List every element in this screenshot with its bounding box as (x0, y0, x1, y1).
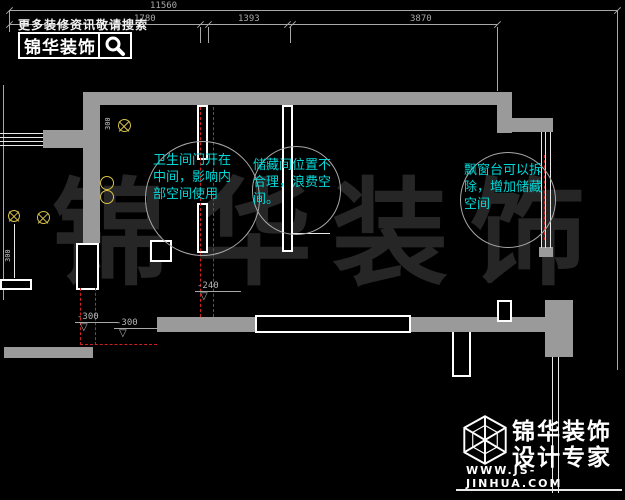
wall-stub-right (497, 300, 512, 322)
footer-cube-logo-icon (462, 414, 508, 470)
level-label: -240 (197, 281, 219, 291)
watermark-char: 装 (332, 176, 448, 292)
drain-symbol-icon (8, 210, 20, 222)
dim-extension-left (3, 85, 4, 300)
drain-symbol-icon (37, 211, 50, 224)
level-triangle-icon: ▽ (200, 292, 208, 302)
header-slogan: 更多装修资讯敬请搜索 (18, 16, 148, 33)
riser-label: 300 (4, 249, 12, 262)
wall-bay-bottom-cap (539, 247, 553, 257)
header-logo-text: 锦华装饰 (20, 33, 98, 58)
dim-extension (9, 10, 10, 32)
level-triangle-icon: ▽ (80, 323, 88, 333)
annotation-text-bathroom: 卫生间门开在 中间，影响内 部空间使用 (153, 152, 253, 203)
level-triangle-icon: ▽ (119, 329, 127, 339)
annotation-text-storage: 储藏间位置不 合理，浪费空 间。 (253, 157, 343, 208)
annotation-text-baywindow: 飘窗台可以拆 除，增加储藏 空间 (464, 162, 554, 213)
window-bottom-wall (255, 315, 411, 333)
pipe-symbol-icon (100, 176, 114, 190)
window-hatch-line (0, 145, 43, 146)
dim-label-seg2: 1393 (238, 14, 260, 24)
demolition-line (80, 344, 157, 345)
dim-label-seg3: 3870 (410, 14, 432, 24)
wall-top-right-step (497, 92, 512, 133)
wall-stub-left (0, 279, 32, 290)
wall-top (85, 92, 497, 105)
dim-extension (497, 27, 498, 91)
pipe-symbol-icon (100, 190, 114, 204)
search-icon (100, 35, 130, 57)
dim-extension-right (617, 10, 618, 370)
level-label: -300 (77, 312, 99, 322)
wall-bottom-left (4, 347, 93, 358)
dim-extension (208, 27, 209, 43)
dim-extension (200, 27, 201, 43)
window-hatch-line (0, 137, 43, 138)
wall-end-cap (76, 243, 99, 290)
window-hatch-line (0, 133, 43, 134)
cad-floorplan-canvas: 锦 华 装 饰 11560 1780 1393 3870 (0, 0, 625, 500)
wall-bottom-right-column (545, 300, 573, 357)
leader-line (14, 224, 15, 278)
wall-stub-below (452, 332, 471, 377)
dim-extension (290, 27, 291, 43)
window-hatch-line (0, 141, 43, 142)
wall-bay-top-cap (511, 118, 553, 132)
dim-label-total: 11560 (150, 1, 177, 11)
wall-left-vertical (83, 92, 100, 243)
dim-line-total (9, 10, 617, 11)
level-label: -300 (116, 318, 138, 328)
drain-symbol-icon (118, 119, 131, 132)
footer-url: WWW.JS-JINHUA.COM (466, 464, 625, 490)
wall-left-horizontal (43, 130, 100, 148)
riser-label: 300 (104, 117, 112, 130)
header-logo-box: 锦华装饰 (18, 32, 132, 59)
